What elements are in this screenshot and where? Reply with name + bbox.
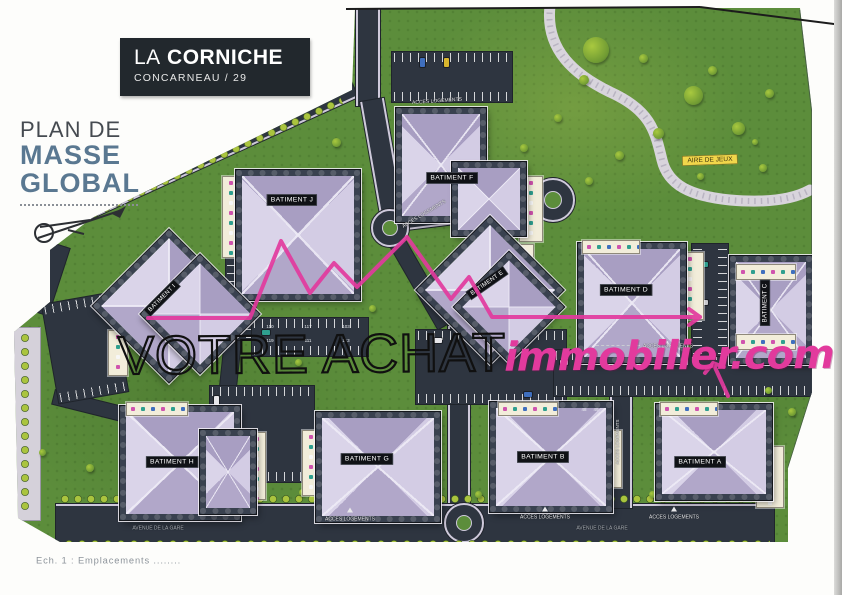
building-label-b: BATIMENT B: [517, 451, 569, 463]
car-icon: [560, 360, 568, 365]
parking-number: 113: [342, 339, 349, 344]
building-label-g: BATIMENT G: [341, 453, 393, 465]
road-label-acces-logements-b: ACCES LOGEMENTS: [616, 419, 621, 464]
parking-number: 111: [305, 339, 312, 344]
road-north-entry: [356, 6, 380, 106]
building-label-text: BATIMENT H: [150, 458, 194, 465]
playground-label: AIRE DE JEUX: [682, 154, 738, 166]
parking-number: 117: [304, 325, 311, 330]
car-icon: [214, 396, 219, 405]
bush: [788, 408, 796, 416]
roundabout-south: [444, 503, 484, 543]
building-a: [656, 404, 772, 500]
bush: [579, 75, 589, 85]
scan-edge-shadow: [834, 0, 842, 595]
car-icon: [524, 392, 532, 397]
building-h-wing: [200, 430, 256, 514]
north-arrow-icon: [28, 200, 138, 246]
car-icon: [420, 58, 425, 67]
road-label-avenue-west: AVENUE DE LA GARE: [132, 525, 183, 531]
tree-row-footpath: [20, 332, 31, 516]
marker-arrow-icon: [542, 507, 548, 512]
bush: [649, 491, 656, 498]
road-label-avenue-east: AVENUE DE LA GARE: [576, 525, 627, 531]
building-label-a: BATIMENT A: [674, 456, 725, 468]
bush: [732, 122, 745, 135]
bush: [295, 359, 302, 366]
parking-number: 110: [266, 325, 273, 330]
leader-line: [596, 345, 640, 346]
terrace-b-north: [498, 402, 558, 416]
bush: [765, 89, 774, 98]
building-label-text: BATIMENT F: [430, 174, 473, 181]
bush: [752, 139, 758, 145]
road-label-acces-logements-s3: ACCES LOGEMENTS: [649, 514, 699, 520]
bush: [639, 54, 648, 63]
bush: [583, 37, 609, 63]
car-icon: [262, 330, 270, 335]
terrace-d-north: [582, 240, 640, 254]
title-block: LA CORNICHE CONCARNEAU / 29: [120, 38, 310, 96]
building-g: [316, 412, 440, 522]
building-label-text: BATIMENT B: [521, 453, 565, 460]
marker-arrow-icon: [258, 124, 266, 131]
parking-number: 103: [342, 325, 350, 330]
building-label-text: BATIMENT C: [762, 284, 769, 323]
bush: [653, 128, 664, 139]
plan-label-line1: PLAN DE: [20, 118, 140, 141]
car-icon: [434, 338, 442, 343]
building-j: [236, 170, 360, 300]
marker-arrow-icon: [347, 508, 353, 513]
bush: [39, 449, 46, 456]
project-title-name: CORNICHE: [167, 46, 283, 69]
building-label-text: BATIMENT J: [271, 196, 313, 203]
scanned-site-plan-page: BATIMENT A BATIMENT B BATIMENT C BATIMEN…: [0, 0, 842, 595]
bush: [697, 173, 704, 180]
project-title-prefix: LA: [134, 46, 161, 69]
bush: [585, 177, 593, 185]
bush: [332, 138, 341, 147]
parking-lot-north: [392, 52, 512, 102]
bush: [369, 305, 376, 312]
parking-number: 119: [266, 339, 273, 344]
plan-label-line3: GLOBAL: [20, 169, 140, 197]
road-label-acces-logements-east: ACCES LOGEMENTS: [643, 343, 693, 349]
playground-label-text: AIRE DE JEUX: [687, 156, 732, 165]
parking-number: 48: [581, 408, 586, 413]
bush: [475, 491, 482, 498]
building-label-h: BATIMENT H: [146, 456, 198, 468]
bush: [765, 387, 772, 394]
building-label-text: BATIMENT G: [345, 455, 389, 462]
road-label-acces-logements-s2: ACCES LOGEMENTS: [520, 514, 570, 520]
building-label-c: BATIMENT C: [760, 280, 770, 326]
bush: [708, 66, 717, 75]
marker-arrow-icon: [671, 507, 677, 512]
project-title: LA CORNICHE: [134, 46, 310, 70]
bush: [684, 86, 703, 105]
road-label-acces-logements-s1: ACCES LOGEMENTS: [325, 516, 375, 522]
building-label-d: BATIMENT D: [600, 284, 652, 296]
terrace-c-north: [736, 264, 796, 280]
plan-label-line2: MASSE: [20, 141, 140, 169]
bush: [615, 151, 624, 160]
bush: [520, 144, 528, 152]
building-label-text: BATIMENT D: [604, 286, 648, 293]
parking-number: 49: [593, 408, 598, 413]
car-icon: [444, 58, 449, 67]
bush: [86, 464, 94, 472]
project-subtitle: CONCARNEAU / 29: [134, 72, 310, 84]
building-label-text: BATIMENT A: [678, 458, 721, 465]
tree-row-avenue-south: [64, 539, 770, 550]
terrace-h-north: [126, 402, 188, 416]
terrace-a-north: [660, 402, 718, 416]
terrace-c-south: [736, 334, 796, 350]
bush: [759, 164, 767, 172]
building-label-j: BATIMENT J: [267, 194, 318, 206]
bush: [554, 114, 562, 122]
building-label-f: BATIMENT F: [426, 172, 477, 184]
plan-type-label: PLAN DE MASSE GLOBAL: [20, 118, 140, 206]
scale-caption: Ech. 1 : Emplacements ........: [36, 556, 181, 566]
